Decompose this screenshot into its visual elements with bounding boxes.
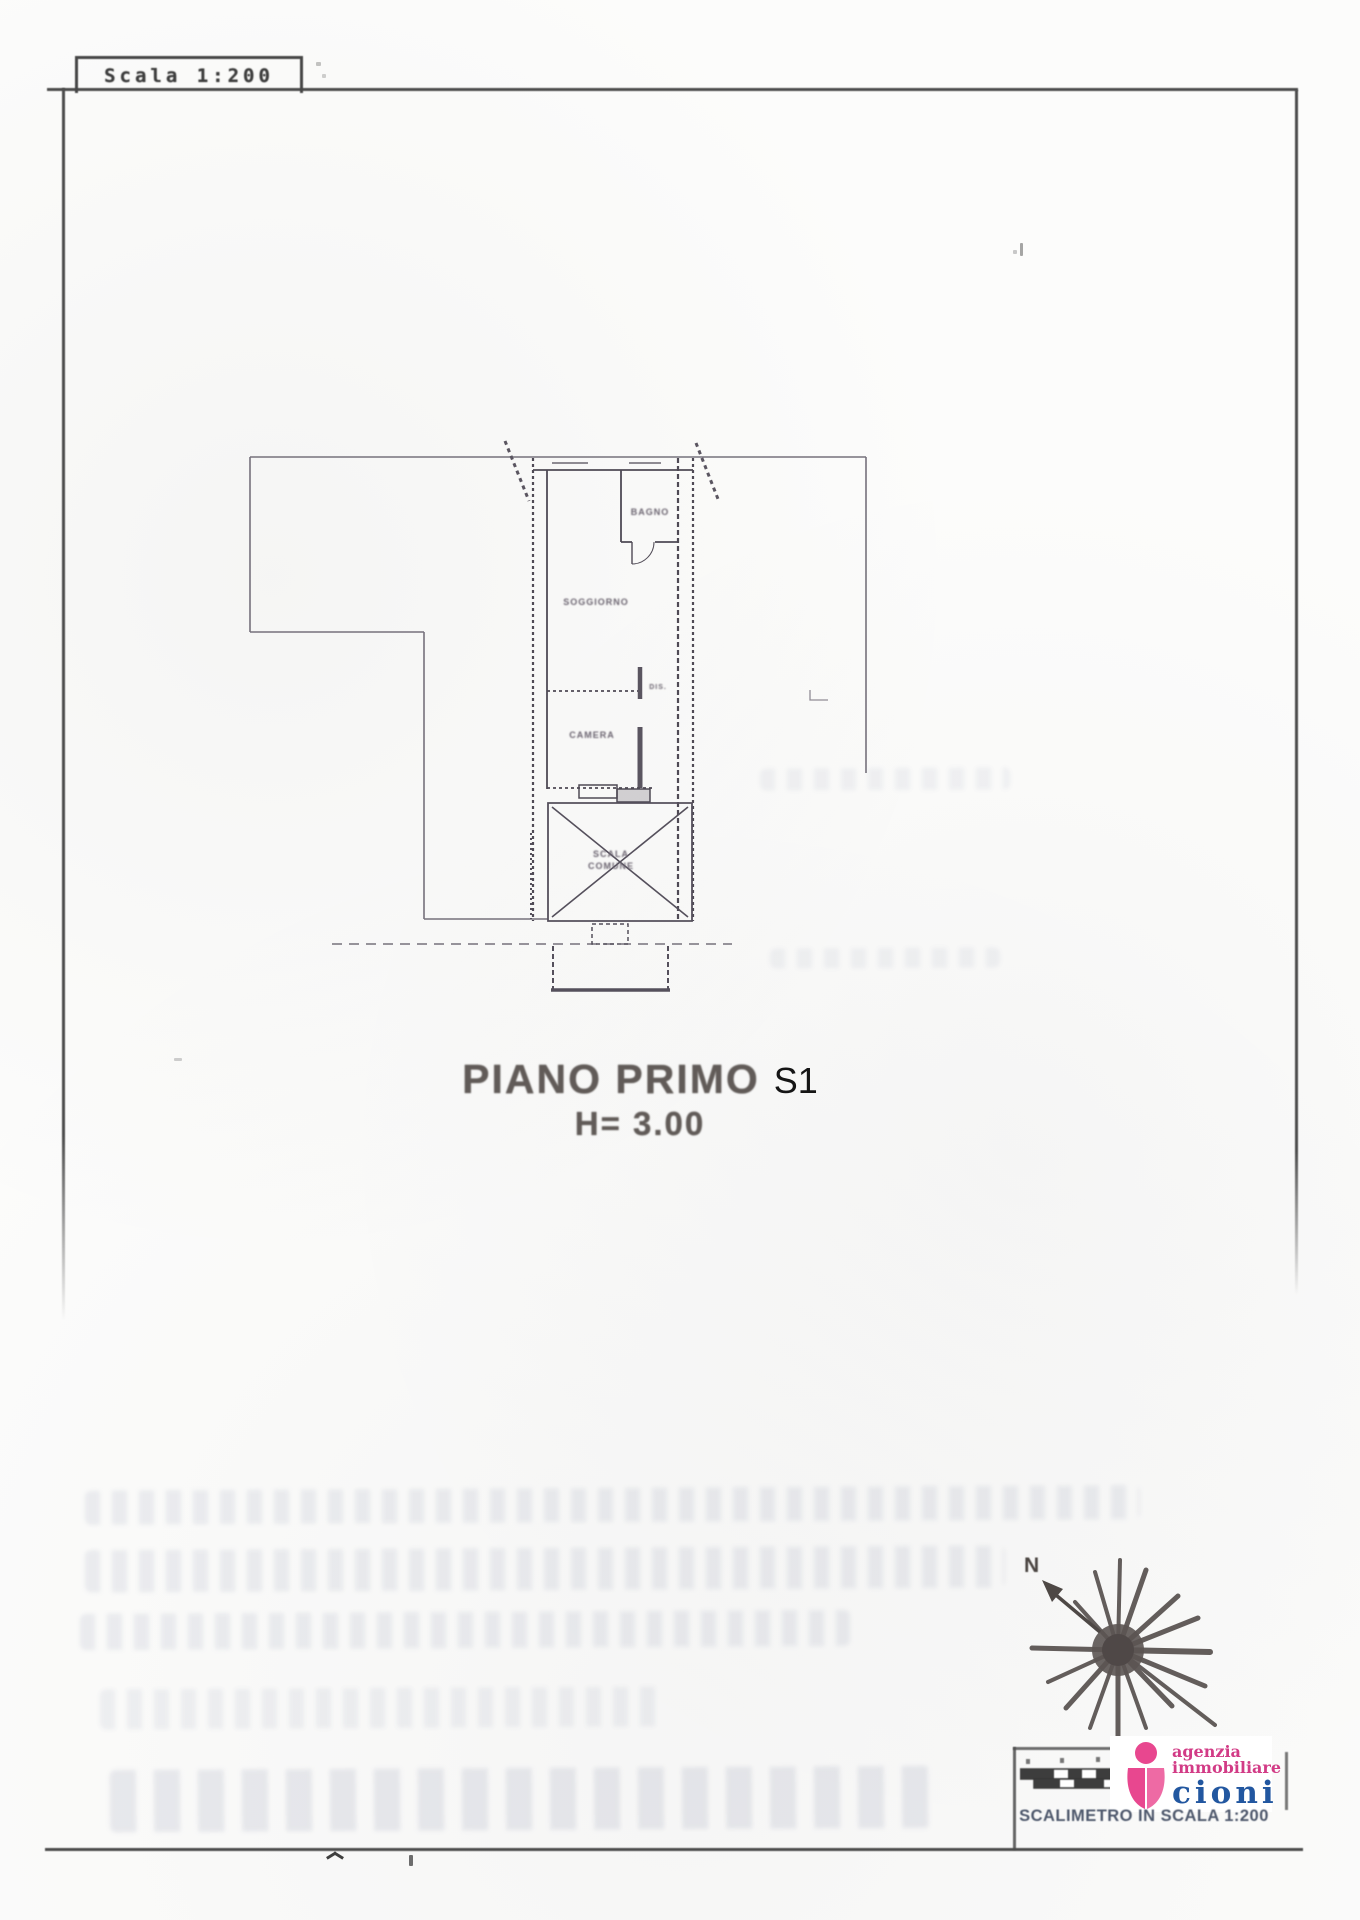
bleedthrough-text bbox=[80, 1610, 850, 1650]
agency-logo-icon bbox=[1120, 1740, 1172, 1812]
bleedthrough-text bbox=[770, 947, 1000, 968]
logo-box-border-left bbox=[1013, 1747, 1016, 1850]
compass-center-core bbox=[1102, 1634, 1134, 1666]
bleedthrough-text bbox=[85, 1546, 1005, 1593]
plan-title: PIANO PRIMO bbox=[462, 1056, 760, 1102]
property-outline bbox=[250, 457, 866, 944]
room-label-camera: CAMERA bbox=[569, 730, 615, 740]
north-arrow bbox=[1042, 1580, 1100, 1632]
scale-box: Scala 1:200 bbox=[75, 56, 303, 93]
agency-name: cioni bbox=[1172, 1778, 1281, 1810]
scale-label: Scala 1:200 bbox=[104, 65, 274, 87]
break-marks bbox=[505, 441, 718, 501]
scan-speck bbox=[1020, 243, 1023, 256]
room-label-scala-comune: SCALA COMUNE bbox=[582, 848, 640, 872]
scanned-floorplan-page: Scala 1:200 bbox=[0, 0, 1360, 1920]
plan-title-block: PIANO PRIMOS1 H= 3.00 bbox=[330, 1056, 950, 1143]
scan-speck bbox=[1013, 250, 1017, 254]
scan-caret-mark bbox=[326, 1854, 344, 1864]
page-border-bottom bbox=[45, 1848, 1303, 1851]
plan-title-line: PIANO PRIMOS1 bbox=[330, 1056, 950, 1103]
scan-speck bbox=[174, 1058, 182, 1061]
bleedthrough-text bbox=[760, 767, 1010, 790]
room-label-dis: DIS. bbox=[649, 684, 667, 691]
bleedthrough-text bbox=[110, 1766, 930, 1832]
page-border-right bbox=[1295, 90, 1298, 1295]
stairwell bbox=[531, 803, 692, 990]
room-label-soggiorno: SOGGIORNO bbox=[563, 597, 629, 607]
agency-text-block: agenzia immobiliare cioni bbox=[1172, 1744, 1281, 1809]
compass-north-label: N bbox=[1024, 1554, 1039, 1578]
scan-speck bbox=[322, 74, 326, 78]
scan-speck bbox=[316, 62, 321, 66]
bleedthrough-text bbox=[85, 1485, 1140, 1525]
room-label-bagno: BAGNO bbox=[631, 507, 670, 517]
footer-caption: SCALIMETRO IN SCALA 1:200 bbox=[1002, 1806, 1285, 1826]
logo-box-border-right bbox=[1285, 1752, 1288, 1810]
scan-speck bbox=[409, 1855, 413, 1866]
bleedthrough-text bbox=[100, 1687, 660, 1730]
plan-height: H= 3.00 bbox=[330, 1105, 950, 1143]
floorplan-drawing bbox=[200, 430, 920, 1010]
plan-title-suffix: S1 bbox=[774, 1060, 818, 1101]
page-border-left bbox=[62, 88, 65, 1320]
